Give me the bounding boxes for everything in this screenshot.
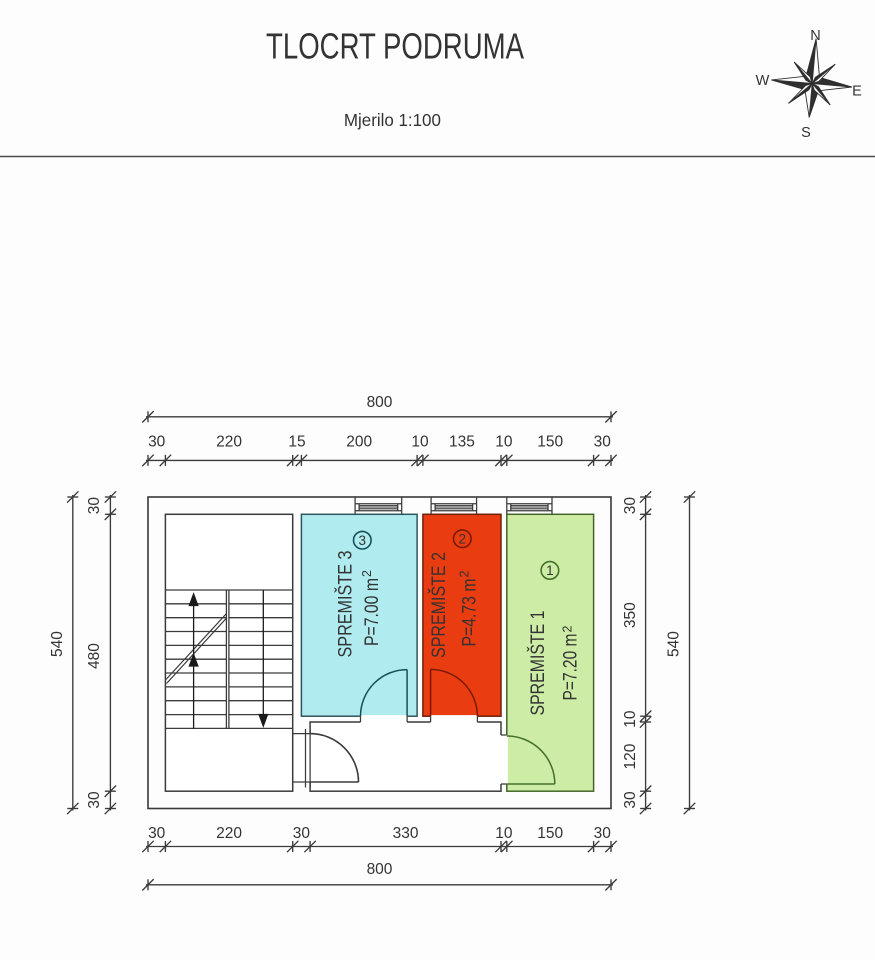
- svg-text:Mjerilo 1:100: Mjerilo 1:100: [344, 110, 441, 130]
- svg-text:TLOCRT PODRUMA: TLOCRT PODRUMA: [266, 26, 524, 67]
- svg-text:10: 10: [411, 434, 429, 451]
- svg-text:330: 330: [393, 825, 419, 842]
- svg-text:2: 2: [561, 625, 575, 632]
- svg-text:120: 120: [622, 743, 639, 769]
- svg-text:10: 10: [622, 710, 639, 728]
- svg-text:W: W: [756, 73, 770, 89]
- svg-text:E: E: [852, 84, 862, 100]
- svg-text:P=7.00 m: P=7.00 m: [362, 578, 383, 646]
- svg-text:10: 10: [495, 825, 513, 842]
- svg-text:P=7.20 m: P=7.20 m: [561, 634, 582, 701]
- svg-text:540: 540: [666, 631, 683, 657]
- svg-text:800: 800: [367, 394, 393, 411]
- svg-text:480: 480: [86, 643, 103, 669]
- svg-text:30: 30: [622, 791, 639, 809]
- svg-text:P=4.73 m: P=4.73 m: [460, 579, 481, 647]
- svg-text:220: 220: [216, 825, 242, 842]
- svg-text:2: 2: [360, 570, 374, 577]
- svg-text:2: 2: [458, 570, 472, 577]
- svg-text:S: S: [801, 125, 811, 141]
- svg-text:30: 30: [86, 497, 103, 515]
- svg-text:150: 150: [537, 825, 563, 842]
- svg-text:540: 540: [49, 631, 66, 657]
- svg-text:30: 30: [148, 825, 166, 842]
- svg-text:1: 1: [546, 563, 554, 578]
- svg-text:15: 15: [288, 434, 305, 451]
- svg-text:150: 150: [537, 434, 563, 451]
- svg-text:10: 10: [495, 434, 513, 451]
- svg-text:30: 30: [594, 434, 612, 451]
- svg-text:30: 30: [622, 497, 639, 515]
- svg-text:SPREMIŠTE 3: SPREMIŠTE 3: [335, 551, 357, 658]
- svg-text:2: 2: [459, 532, 467, 547]
- svg-text:SPREMIŠTE 2: SPREMIŠTE 2: [428, 552, 450, 658]
- svg-text:30: 30: [293, 825, 311, 842]
- svg-text:220: 220: [216, 434, 242, 451]
- svg-text:135: 135: [449, 434, 475, 451]
- svg-text:30: 30: [594, 825, 612, 842]
- svg-text:800: 800: [367, 861, 393, 878]
- svg-text:30: 30: [148, 434, 166, 451]
- svg-text:SPREMIŠTE 1: SPREMIŠTE 1: [527, 611, 549, 716]
- svg-text:N: N: [810, 28, 820, 44]
- svg-text:3: 3: [359, 533, 367, 548]
- svg-text:200: 200: [346, 434, 372, 451]
- svg-text:350: 350: [622, 602, 639, 628]
- svg-text:30: 30: [86, 791, 103, 809]
